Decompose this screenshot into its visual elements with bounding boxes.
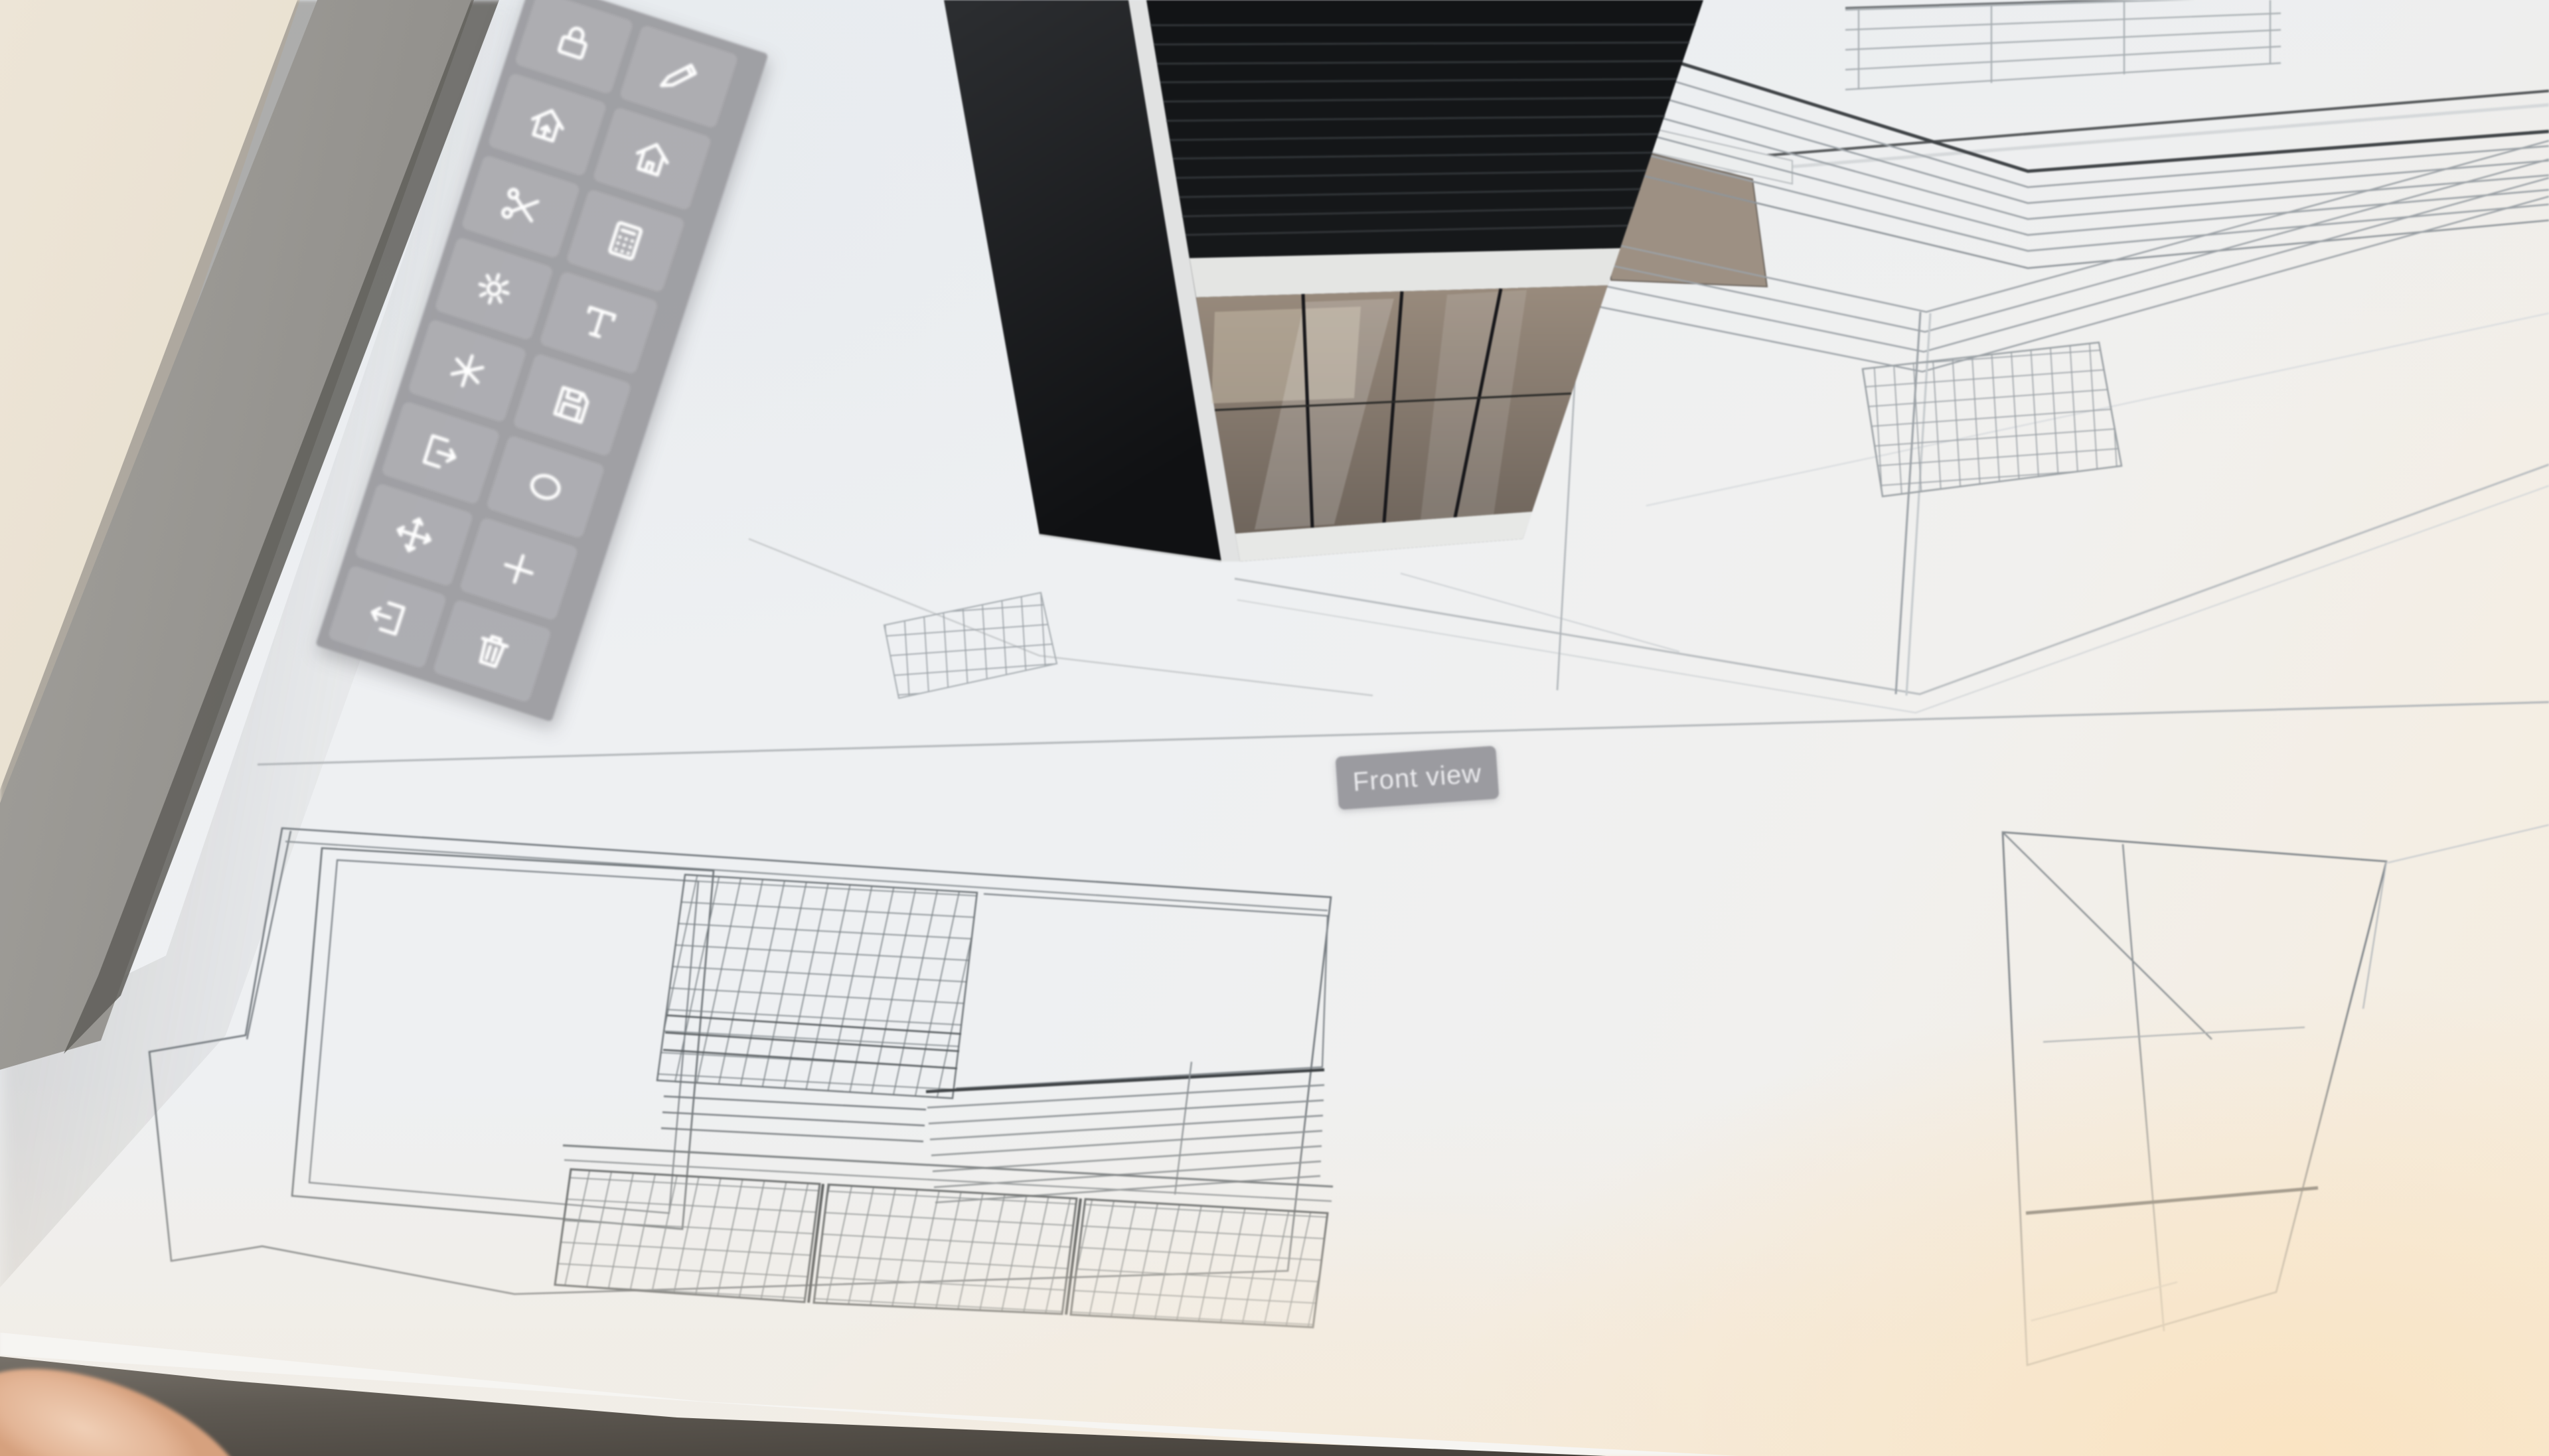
view-label-text: Front view bbox=[1352, 759, 1482, 797]
view-side-plan bbox=[2003, 825, 2549, 1365]
view-front-elevation bbox=[149, 828, 1333, 1327]
export-icon bbox=[413, 425, 468, 480]
ellipse-icon bbox=[518, 459, 573, 514]
view-label-badge[interactable]: Front view bbox=[1336, 746, 1500, 810]
text-icon bbox=[572, 295, 627, 350]
home-upload-icon bbox=[520, 97, 575, 152]
exit-icon bbox=[360, 589, 415, 644]
lock-icon bbox=[546, 15, 601, 70]
trash-icon bbox=[465, 623, 520, 678]
pencil-icon bbox=[651, 49, 706, 104]
add-icon bbox=[491, 542, 546, 597]
scissors-icon bbox=[493, 179, 548, 234]
calculator-icon bbox=[598, 213, 653, 268]
move-icon bbox=[386, 507, 441, 562]
snap-icon bbox=[439, 343, 495, 398]
save-icon bbox=[544, 377, 599, 432]
tablet-photo: Front view bbox=[0, 0, 2549, 1456]
settings-icon bbox=[467, 261, 522, 317]
view-3d-perspective bbox=[749, 0, 2549, 713]
home-icon bbox=[625, 131, 680, 186]
